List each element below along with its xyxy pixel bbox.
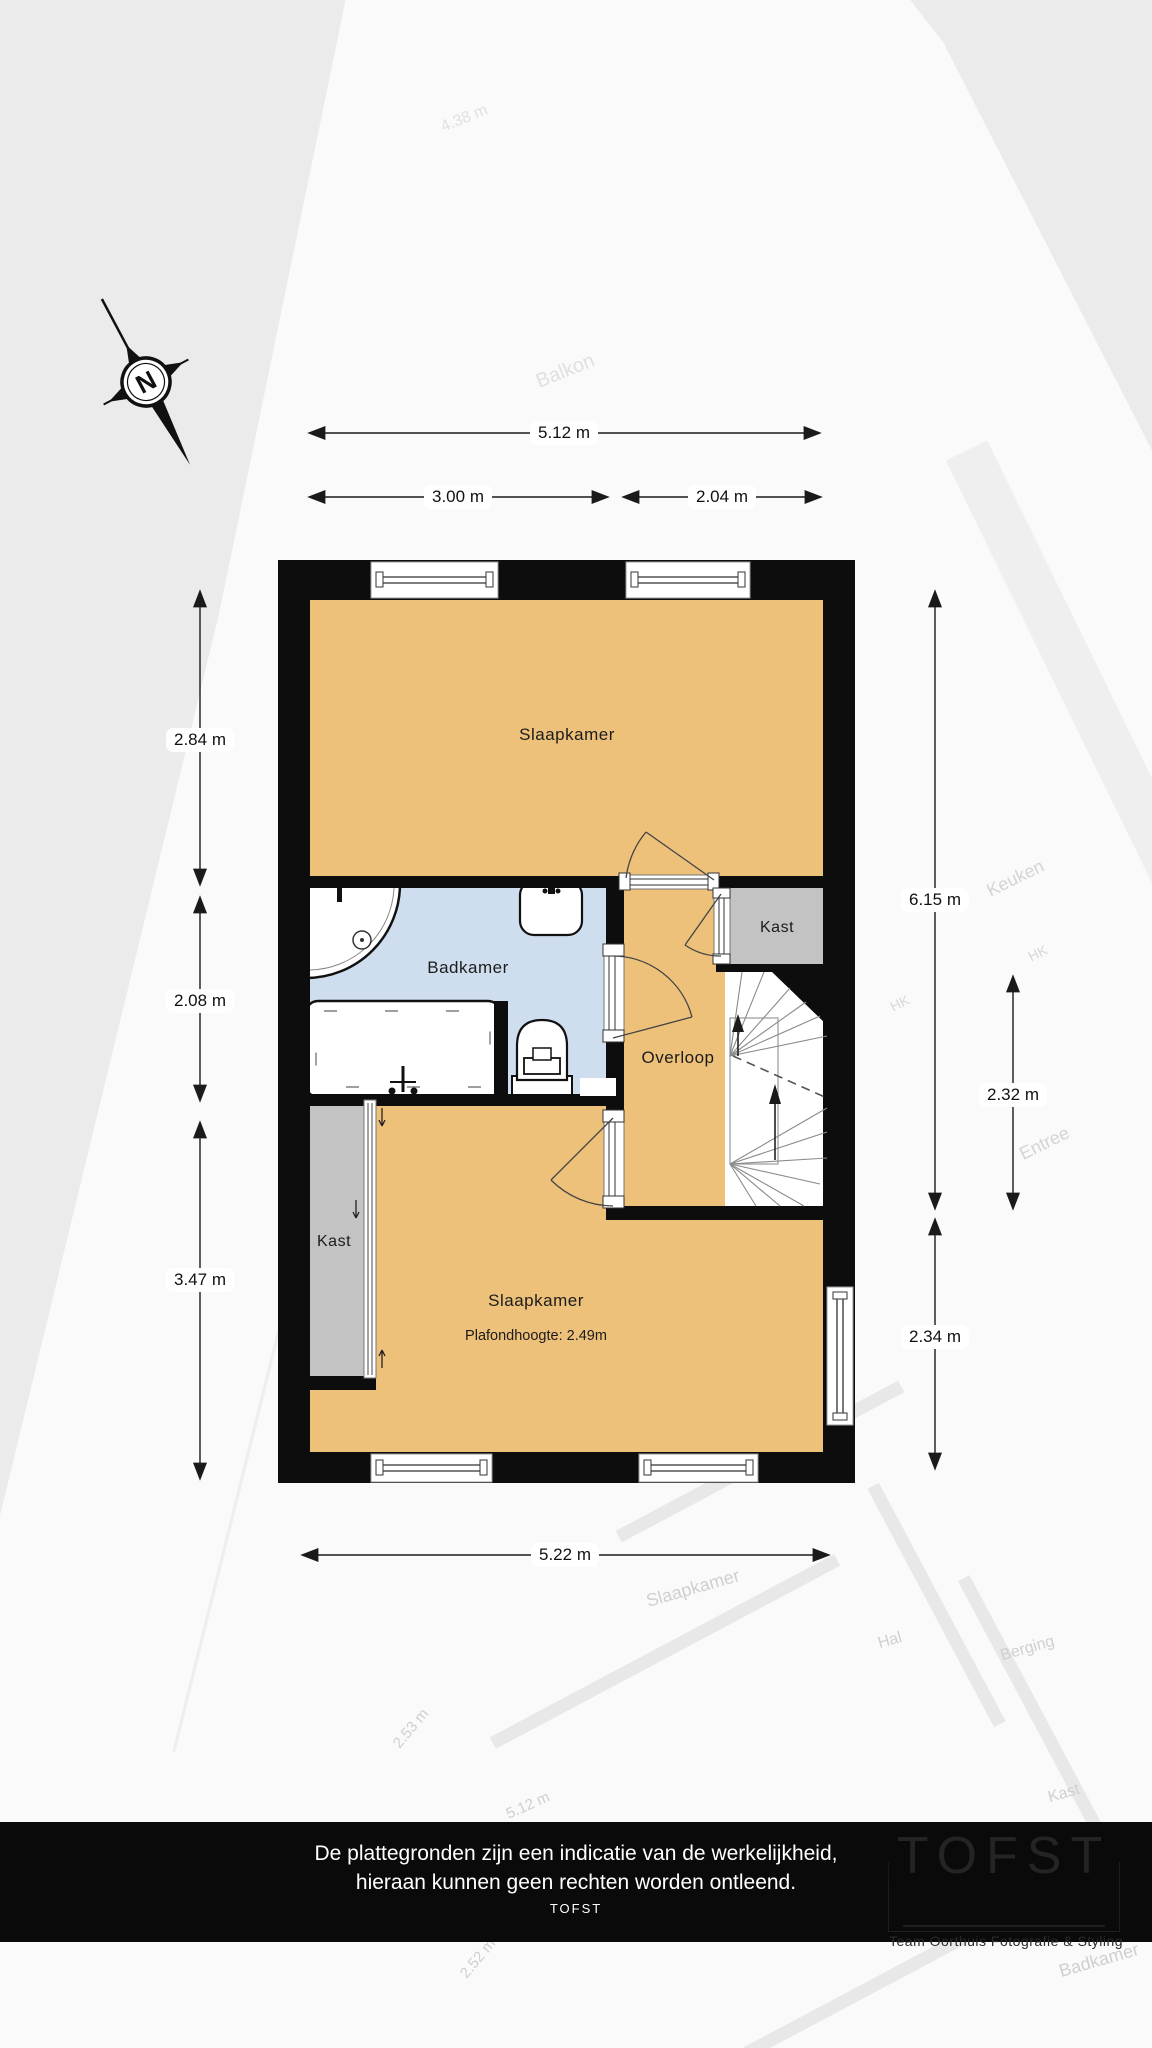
compass-north-icon: N bbox=[59, 276, 232, 487]
dim-top-left: 3.00 m bbox=[424, 485, 492, 509]
dim-right-bottom: 2.34 m bbox=[901, 1325, 969, 1349]
toilet-icon bbox=[512, 1020, 572, 1096]
room-label-slaapkamer-top: Slaapkamer bbox=[519, 725, 615, 745]
dim-right-middle: 2.32 m bbox=[979, 1083, 1047, 1107]
wall-bottom bbox=[278, 1452, 855, 1483]
tofst-logo: Team Oorthuis Fotografie & Styling TOFST bbox=[888, 1834, 1120, 1934]
window-top-left bbox=[371, 562, 498, 598]
wall-niche bbox=[580, 1078, 616, 1096]
tofst-logo-subtitle: Team Oorthuis Fotografie & Styling bbox=[889, 1933, 1119, 1949]
tofst-logo-title: TOFST bbox=[889, 1830, 1119, 1882]
window-right-wall bbox=[827, 1287, 853, 1425]
room-label-overloop: Overloop bbox=[642, 1048, 715, 1068]
room-label-kast-left: Kast bbox=[317, 1233, 351, 1251]
dim-top-total: 5.12 m bbox=[530, 421, 598, 445]
room-label-slaapkamer-bottom: Slaapkamer bbox=[488, 1291, 584, 1311]
window-bottom-left bbox=[371, 1454, 492, 1482]
room-note-ceiling-height: Plafondhoogte: 2.49m bbox=[465, 1328, 607, 1344]
wall-top bbox=[278, 560, 855, 600]
dim-bottom-total: 5.22 m bbox=[531, 1543, 599, 1567]
dim-left-middle: 2.08 m bbox=[166, 989, 234, 1013]
room-label-badkamer: Badkamer bbox=[427, 958, 508, 978]
partition-wall bbox=[494, 1001, 508, 1097]
window-top-right bbox=[626, 562, 750, 598]
room-label-kast-right: Kast bbox=[760, 919, 794, 937]
dim-right-total: 6.15 m bbox=[901, 888, 969, 912]
floorplan-page: 4.38 m Balkon Keuken HK HK Entree Slaapk… bbox=[0, 0, 1152, 2048]
dim-left-bottom: 3.47 m bbox=[166, 1268, 234, 1292]
floorplan-graphic: N bbox=[0, 0, 1152, 2048]
window-bottom-right bbox=[639, 1454, 758, 1482]
dim-top-right: 2.04 m bbox=[688, 485, 756, 509]
dim-left-top: 2.84 m bbox=[166, 728, 234, 752]
wall-left bbox=[278, 560, 310, 1483]
